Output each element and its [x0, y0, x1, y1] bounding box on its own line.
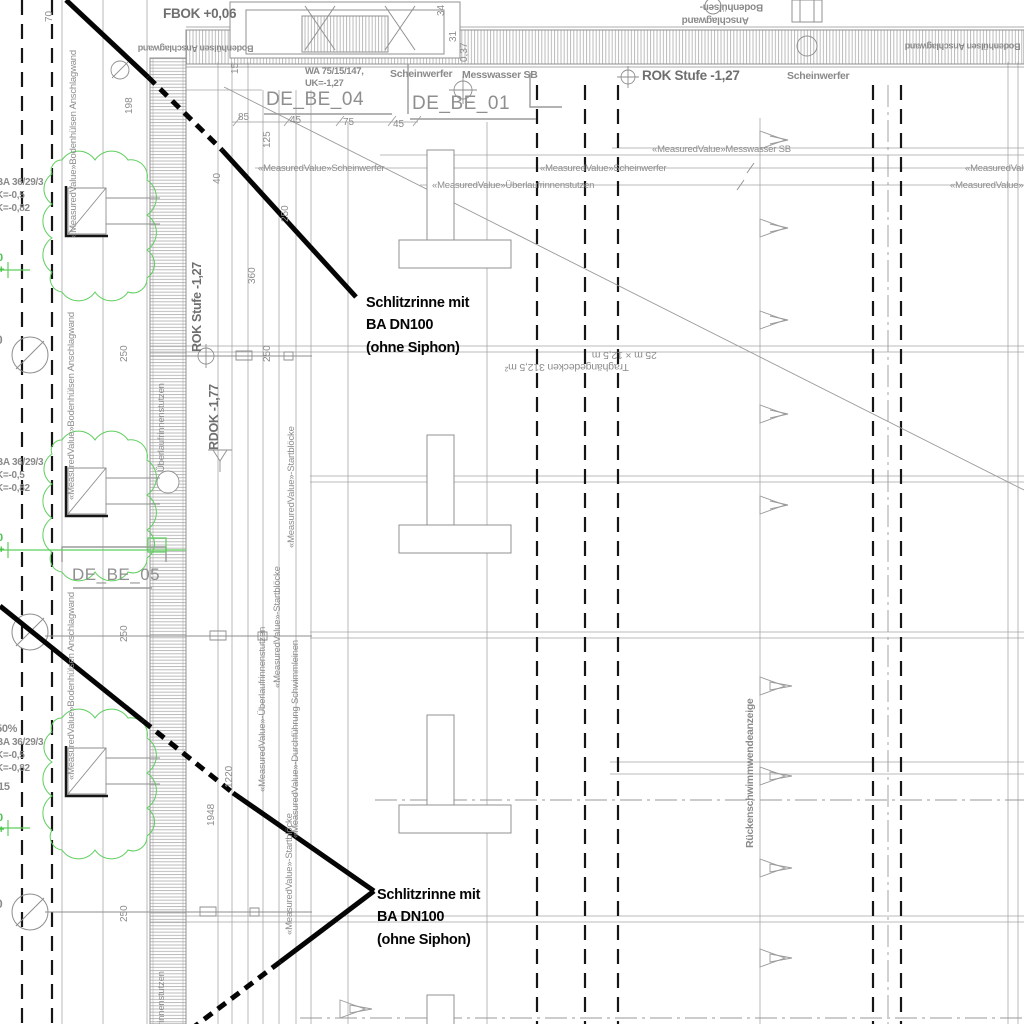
wa-label-line1: WA 75/15/147, — [305, 66, 364, 78]
dim-34: 34 — [436, 5, 449, 16]
dim-45a: 45 — [290, 115, 301, 128]
plan-linework — [0, 0, 1024, 1024]
dim-70: 70 — [44, 11, 57, 22]
ba-tag-1b: K=-0,5 — [0, 190, 25, 203]
ba-tag-3b: K=-0,5 — [0, 750, 25, 763]
grid-vertical-lines — [62, 0, 1018, 1024]
ba-tag-1a: BA 36/29/3 — [0, 177, 43, 190]
lum-tag-2: 0 — [0, 897, 2, 912]
dim-85: 85 — [238, 112, 249, 125]
diagonal-reference-line — [224, 87, 1024, 490]
rok-stufe-left: ROK Stufe -1,27 — [190, 262, 206, 352]
traghaengedecken-size: 25 m × 12,5 m — [592, 348, 657, 361]
lum-tag-1: 0 — [0, 333, 2, 348]
dim-75: 75 — [343, 117, 354, 130]
band-ueberlaufstutzen-2: Überlaufrinnenstutzen — [156, 971, 168, 1024]
dim-31: 31 — [448, 31, 461, 42]
ba-tag-2c: K=-0,82 — [0, 483, 30, 496]
rot-band-label-left: Bodenhülsen Anschlagwand — [138, 42, 253, 53]
dim-250b: 250 — [262, 345, 275, 362]
callout-schlitzrinne-1: Schlitzrinne mit BA DN100 (ohne Siphon) — [366, 292, 469, 359]
callout-leader-lines — [0, 0, 374, 1024]
mv-scheinwerfer-left: «MeasuredValue»Scheinwerfer — [258, 163, 384, 175]
ba-tag-3c: K=-0,82 — [0, 763, 30, 776]
mv-bodenhuelsen-1: «MeasuredValue»Bodenhülsen Anschlagwand — [68, 50, 80, 238]
mv-startbloecke-2: «MeasuredValue»-Startblöcke — [272, 566, 284, 688]
scheinwerfer-top-right: Scheinwerfer — [787, 70, 849, 83]
mv-startbloecke-1: «MeasuredValue»-Startblöcke — [286, 426, 298, 548]
rot-bodenhuelsen-top-2: Anschlagwand — [682, 13, 749, 26]
rot-bodenhuelsen-top-1: Bodenhülsen- — [700, 0, 763, 13]
mv-durchfuehrung: «MeasuredValue»-Durchführung Schwimmlein… — [290, 640, 302, 838]
dim-198: 198 — [124, 97, 137, 114]
rueckenschwimmwendeanzeige: Rückenschwimmwendeanzeige — [744, 699, 757, 848]
dim-037: 0,37 — [459, 43, 472, 62]
ba-tag-2a: BA 36/29/3 — [0, 457, 43, 470]
cad-plan-sheet: FBOK +0,06ROK Stufe -1,27ScheinwerferMes… — [0, 0, 1024, 1024]
mv-ueberlauf-vert: «MeasuredValue»-Überlaufrinnenstutzen — [257, 627, 269, 792]
mv-messwasser: «MeasuredValue»Messwasser SB — [652, 144, 791, 156]
room-tag-de-be-05: DE_BE_05 — [72, 564, 160, 585]
pool-wall-hatching — [150, 27, 1024, 1024]
fbok-level: FBOK +0,06 — [163, 6, 236, 23]
dim-250d: 250 — [119, 625, 132, 642]
dim-125: 125 — [262, 131, 275, 148]
dim-250c: 250 — [119, 345, 132, 362]
messwasser-top: Messwasser SB — [462, 69, 537, 82]
ba-tag-3a: BA 36/29/3 — [0, 737, 43, 750]
luminaire-symbols — [12, 337, 48, 930]
scheinwerfer-top-mid: Scheinwerfer — [390, 68, 452, 81]
rok-stufe-top: ROK Stufe -1,27 — [642, 68, 740, 85]
grn-tag-2b: + — [0, 544, 4, 558]
grn-tag-1b: + — [0, 264, 4, 278]
mv-ueberlauf-right: «MeasuredValue»Überlaufrinnenstutzen — [950, 180, 1024, 192]
pct-tag: 50% — [0, 723, 17, 737]
dim-1948: 1948 — [206, 804, 219, 826]
mv-ueberlauf-mid: «MeasuredValue»Überlaufrinnenstutzen — [432, 180, 594, 192]
dim-45b: 45 — [393, 119, 404, 132]
dim-15b: 15 — [0, 781, 10, 795]
anchor-sleeve-symbols — [66, 186, 160, 796]
mv-scheinwerfer-right: «MeasuredValue»Scheinwerfer — [965, 163, 1024, 175]
band-ueberlaufstutzen-1: Überlaufrinnenstutzen — [156, 383, 168, 472]
rdok-level: RDOK -1,77 — [207, 384, 223, 450]
room-tag-de-be-01: DE_BE_01 — [412, 92, 510, 116]
traghaengedecken-area: Traghängedecken 312,5 m² — [505, 360, 629, 373]
dim-250e: 250 — [119, 905, 132, 922]
dim-360: 360 — [247, 267, 260, 284]
ba-tag-2b: K=-0,5 — [0, 470, 25, 483]
mv-bodenhuelsen-3: «MeasuredValue»Bodenhülsen Anschlagwand — [66, 592, 78, 780]
mv-bodenhuelsen-2: «MeasuredValue»Bodenhülsen Anschlagwand — [66, 312, 78, 500]
rot-band-label-right: Bodenhülsen Anschlagwand — [905, 40, 1020, 51]
callout-schlitzrinne-2: Schlitzrinne mit BA DN100 (ohne Siphon) — [377, 884, 480, 951]
dim-1220: 1220 — [224, 766, 237, 788]
room-tag-de-be-04: DE_BE_04 — [266, 88, 364, 112]
mv-scheinwerfer-mid: «MeasuredValue»Scheinwerfer — [540, 163, 666, 175]
dim-15t: 15 — [230, 63, 243, 74]
dim-250a: 250 — [280, 205, 293, 222]
ba-tag-1c: K=-0,82 — [0, 203, 30, 216]
dim-40: 40 — [212, 173, 225, 184]
grn-tag-3b: + — [0, 824, 4, 838]
